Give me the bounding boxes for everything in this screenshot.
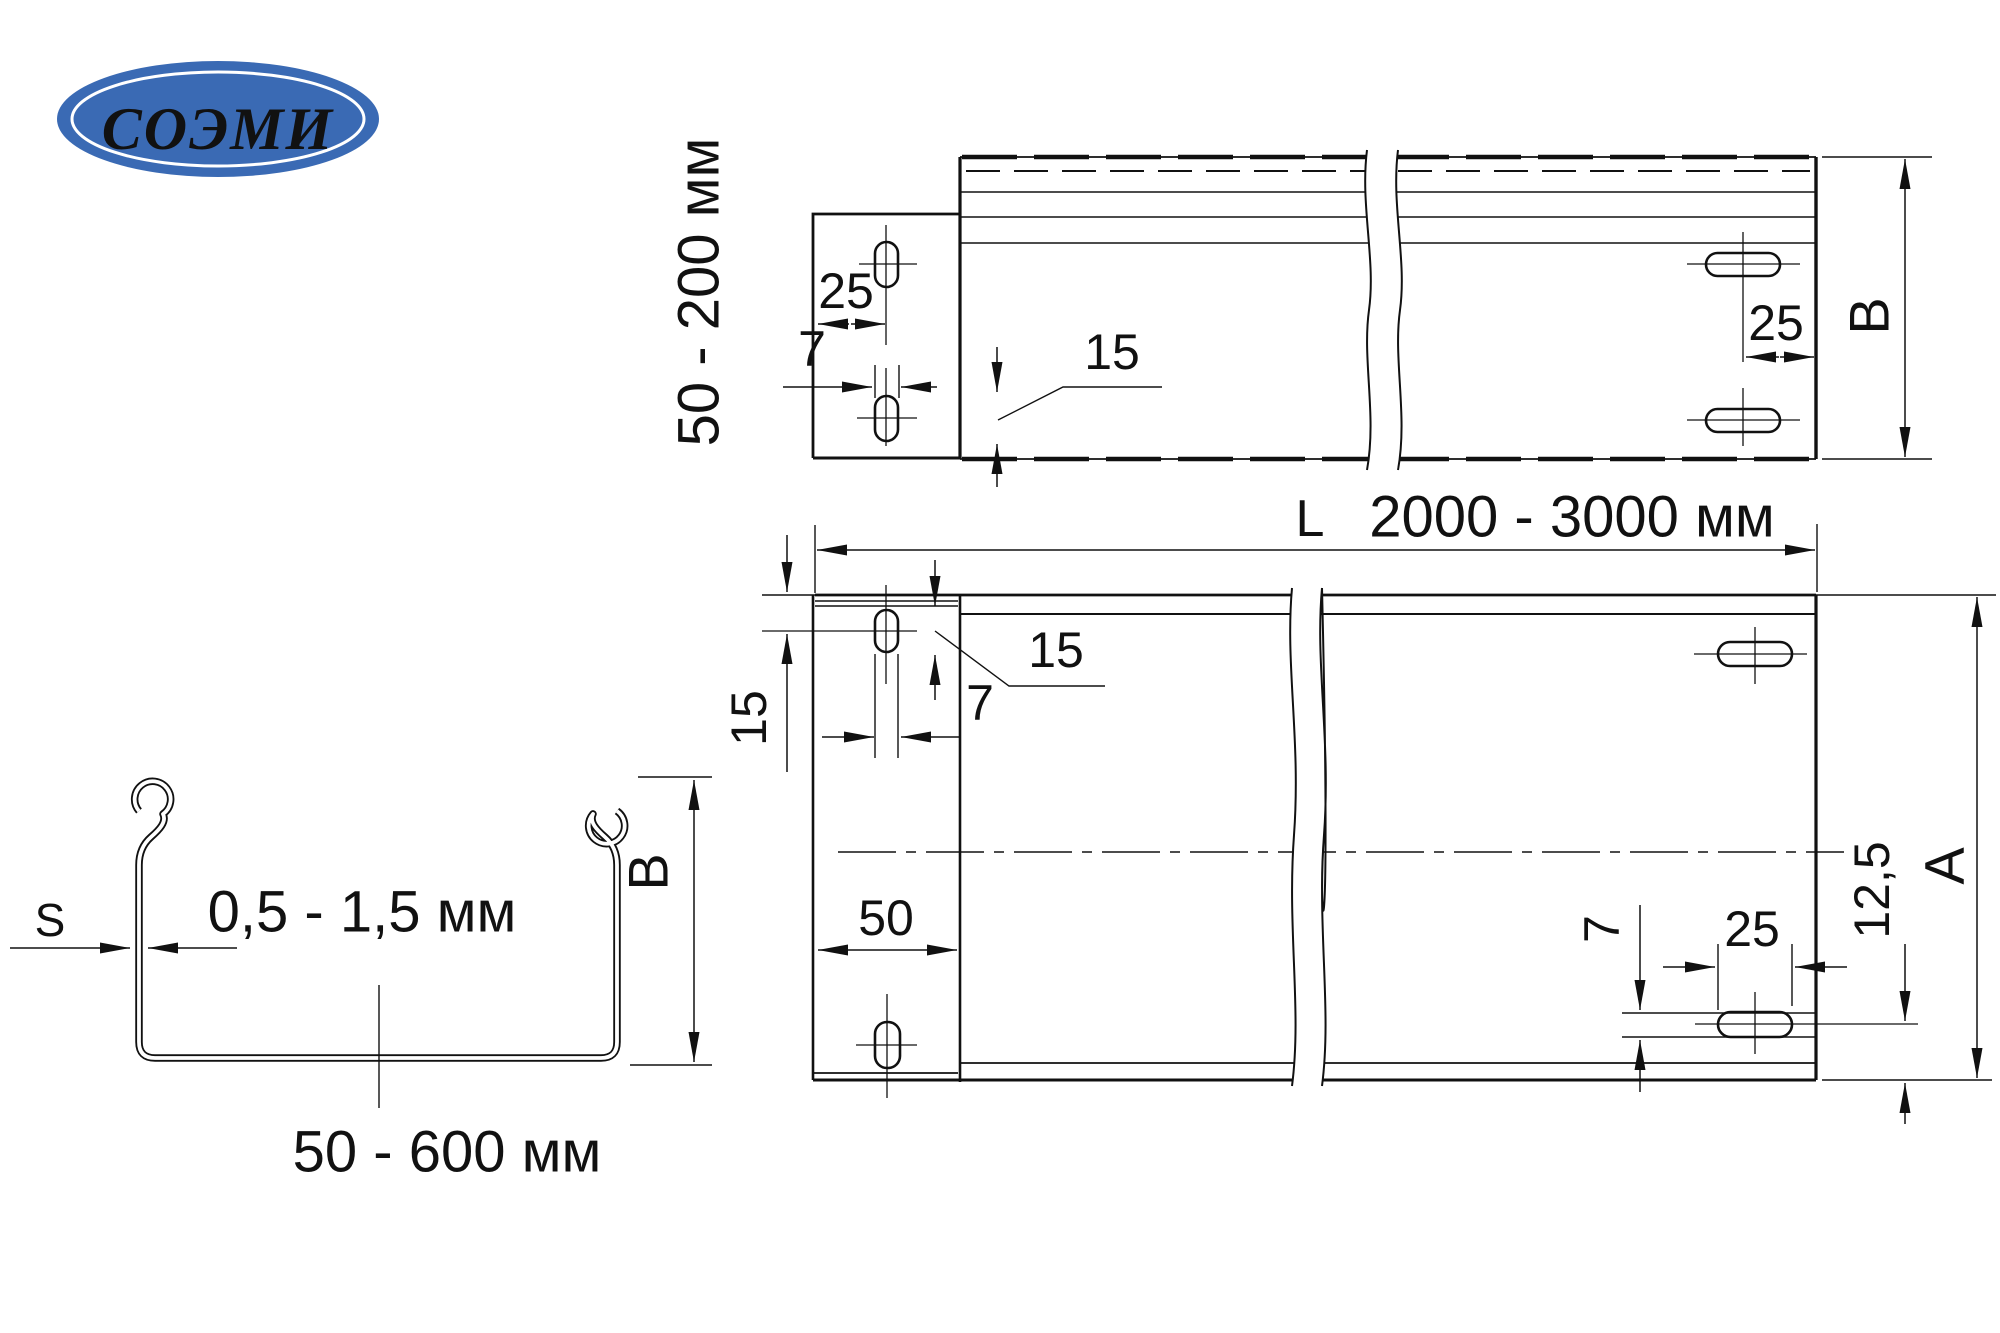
plan-length-range-label: 2000 - 3000 мм <box>1369 485 1774 550</box>
drawing-page: СОЭМИ 50 - 200 м <box>0 0 2000 1333</box>
plan-dim-50-label: 50 <box>858 890 914 946</box>
side-dim-15-label: 15 <box>1084 324 1140 380</box>
side-dim-25r-label: 25 <box>1748 295 1804 351</box>
cross-section: S 0,5 - 1,5 мм 50 - 600 мм B <box>10 777 712 1185</box>
plan-dim-7-label: 7 <box>966 675 994 731</box>
plan-dim-15c-label: 15 <box>1028 622 1084 678</box>
profile-thickness-range-label: 0,5 - 1,5 мм <box>208 880 517 945</box>
plan-extension-lines <box>815 524 1996 1080</box>
profile-width-range-label: 50 - 600 мм <box>293 1120 602 1185</box>
side-view: 50 - 200 мм 25 7 15 25 B <box>667 138 1933 487</box>
logo: СОЭМИ <box>57 61 379 177</box>
side-slot-centerlines <box>857 225 1800 446</box>
side-dim-7-label: 7 <box>798 321 826 377</box>
technical-drawing: СОЭМИ 50 - 200 м <box>0 0 2000 1333</box>
plan-dim-125-label: 12,5 <box>1844 841 1900 938</box>
side-height-range-label: 50 - 200 мм <box>667 138 732 447</box>
plan-dim-15l-label: 15 <box>721 690 777 746</box>
plan-view: L 2000 - 3000 мм 15 15 7 50 7 25 12,5 A <box>721 485 1996 1125</box>
side-dim-25-label: 25 <box>818 263 874 319</box>
profile-thickness-letter: S <box>35 894 66 946</box>
plan-width-letter: A <box>1913 847 1976 885</box>
logo-wordmark: СОЭМИ <box>102 96 335 162</box>
side-height-letter: B <box>1838 297 1901 334</box>
plan-dim-7b-label: 7 <box>1574 915 1630 943</box>
plan-dim-25-label: 25 <box>1724 901 1780 957</box>
profile-height-letter: B <box>617 853 680 890</box>
plan-length-letter: L <box>1296 490 1325 548</box>
